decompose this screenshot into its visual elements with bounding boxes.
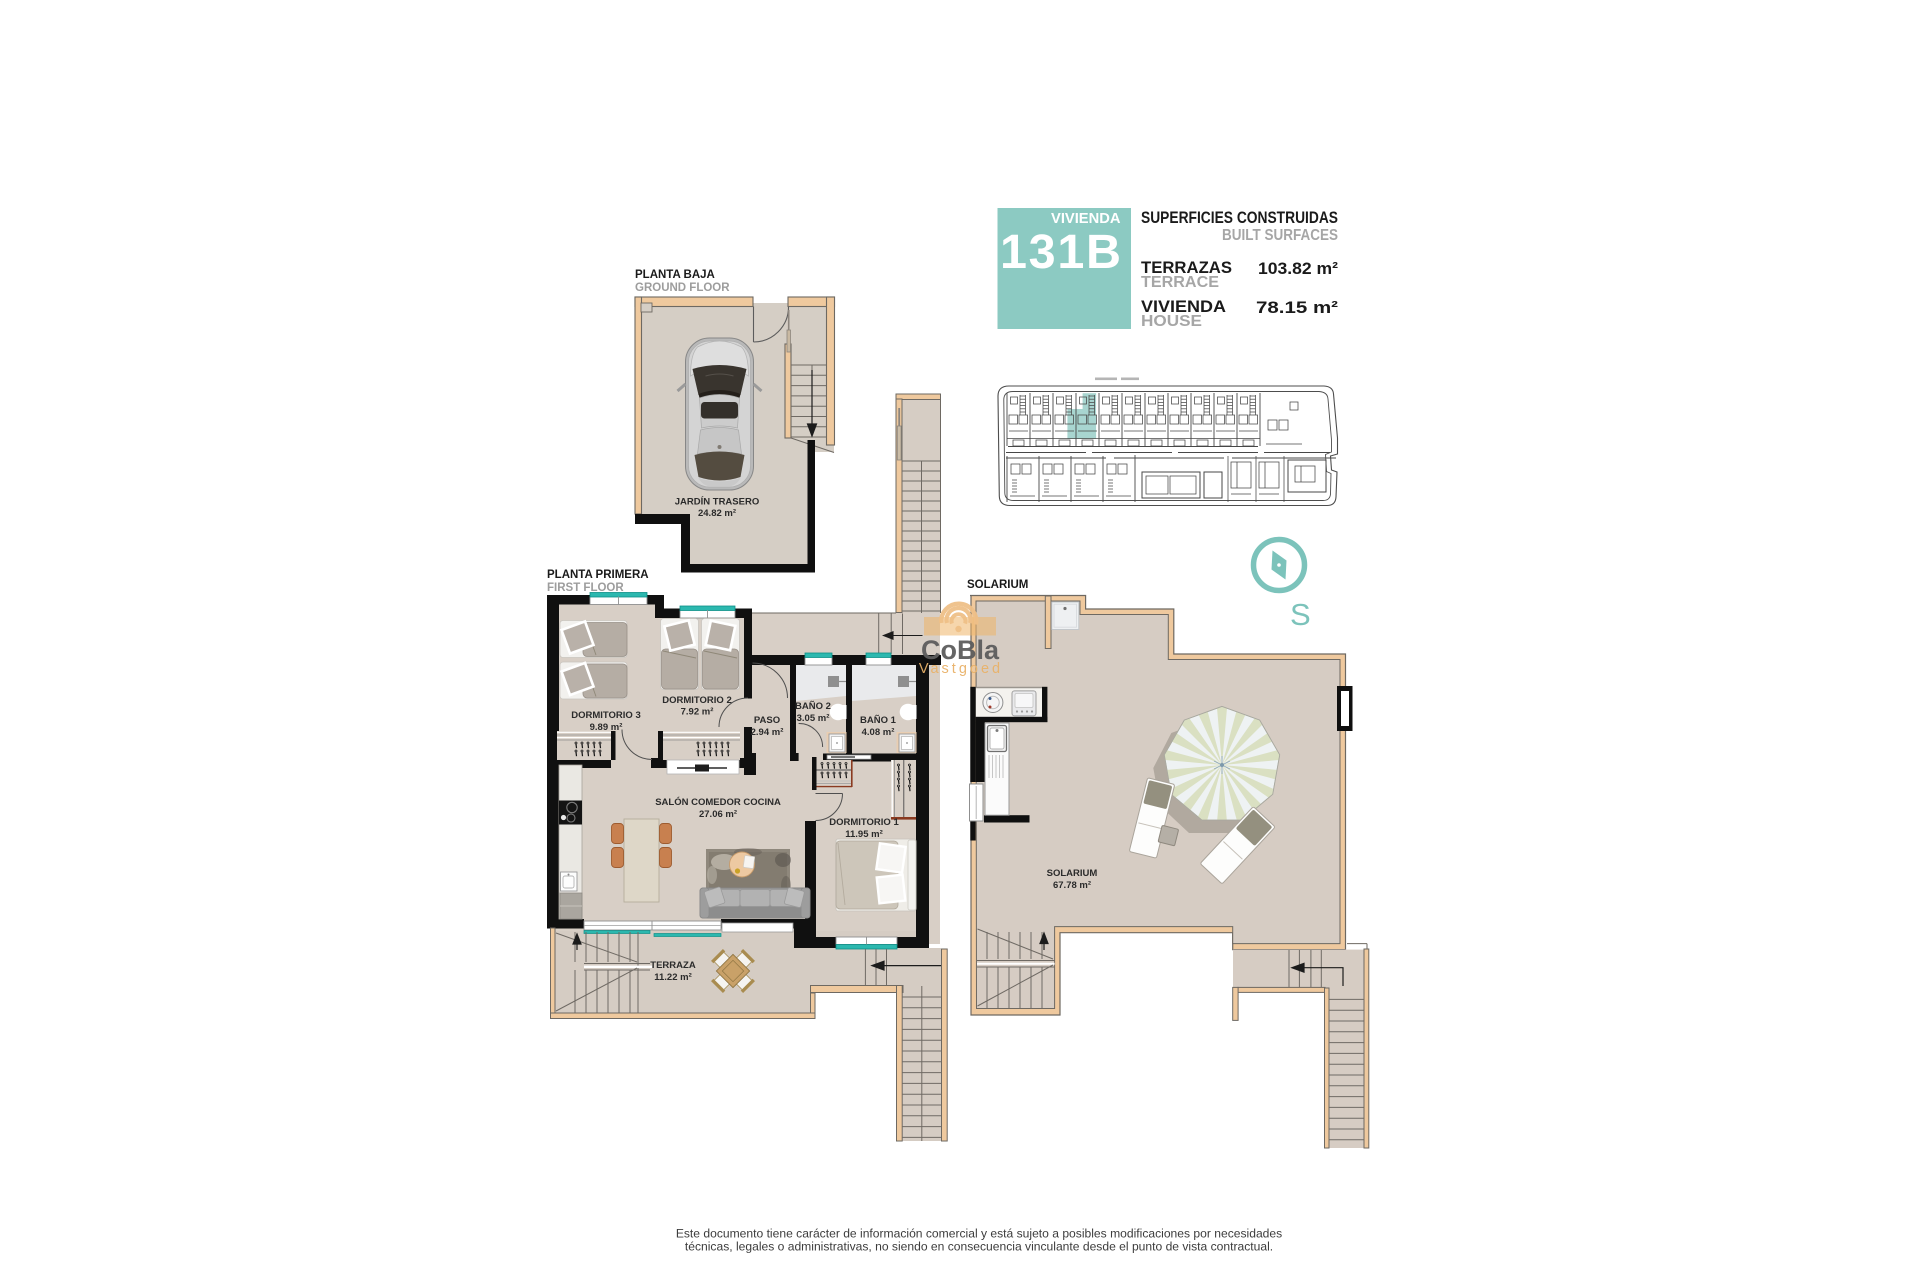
svg-text:BAÑO 2: BAÑO 2 <box>795 701 831 712</box>
svg-text:131B: 131B <box>1000 225 1121 279</box>
svg-text:TERRAZA: TERRAZA <box>650 960 696 971</box>
svg-text:GROUND FLOOR: GROUND FLOOR <box>635 282 730 294</box>
svg-text:9.89 m²: 9.89 m² <box>590 722 623 733</box>
svg-text:Este documento tiene carácter: Este documento tiene carácter de informa… <box>676 1227 1282 1241</box>
svg-text:DORMITORIO 1: DORMITORIO 1 <box>829 817 899 828</box>
svg-text:11.95 m²: 11.95 m² <box>845 829 883 840</box>
svg-text:24.82 m²: 24.82 m² <box>698 508 736 519</box>
svg-text:103.82 m²: 103.82 m² <box>1258 259 1338 278</box>
svg-text:7.92 m²: 7.92 m² <box>681 707 714 718</box>
svg-text:JARDÍN TRASERO: JARDÍN TRASERO <box>675 497 759 508</box>
svg-text:TERRACE: TERRACE <box>1141 274 1219 291</box>
svg-text:4.08 m²: 4.08 m² <box>862 727 895 738</box>
svg-text:67.78 m²: 67.78 m² <box>1053 880 1091 891</box>
svg-text:11.22 m²: 11.22 m² <box>654 972 692 983</box>
svg-text:SALÓN COMEDOR COCINA: SALÓN COMEDOR COCINA <box>655 796 781 808</box>
svg-text:DORMITORIO 2: DORMITORIO 2 <box>662 695 732 706</box>
svg-text:SUPERFICIES CONSTRUIDAS: SUPERFICIES CONSTRUIDAS <box>1141 209 1338 227</box>
svg-text:BUILT SURFACES: BUILT SURFACES <box>1222 227 1338 244</box>
svg-text:HOUSE: HOUSE <box>1141 313 1202 330</box>
svg-text:PASO: PASO <box>754 715 780 726</box>
svg-text:Vastgoed: Vastgoed <box>919 661 1003 677</box>
svg-text:3.05 m²: 3.05 m² <box>797 713 830 724</box>
svg-text:DORMITORIO 3: DORMITORIO 3 <box>571 710 641 721</box>
svg-text:S: S <box>1290 597 1311 632</box>
svg-text:PLANTA BAJA: PLANTA BAJA <box>635 269 715 281</box>
svg-text:SOLARIUM: SOLARIUM <box>1047 868 1098 879</box>
svg-text:SOLARIUM: SOLARIUM <box>967 579 1028 591</box>
svg-text:técnicas, legales o administra: técnicas, legales o administrativas, no … <box>685 1240 1273 1254</box>
svg-text:2.94 m²: 2.94 m² <box>751 727 784 738</box>
svg-text:27.06 m²: 27.06 m² <box>699 809 737 820</box>
svg-text:78.15 m²: 78.15 m² <box>1256 298 1338 317</box>
svg-text:PLANTA PRIMERA: PLANTA PRIMERA <box>547 569 649 581</box>
svg-text:BAÑO 1: BAÑO 1 <box>860 715 897 726</box>
